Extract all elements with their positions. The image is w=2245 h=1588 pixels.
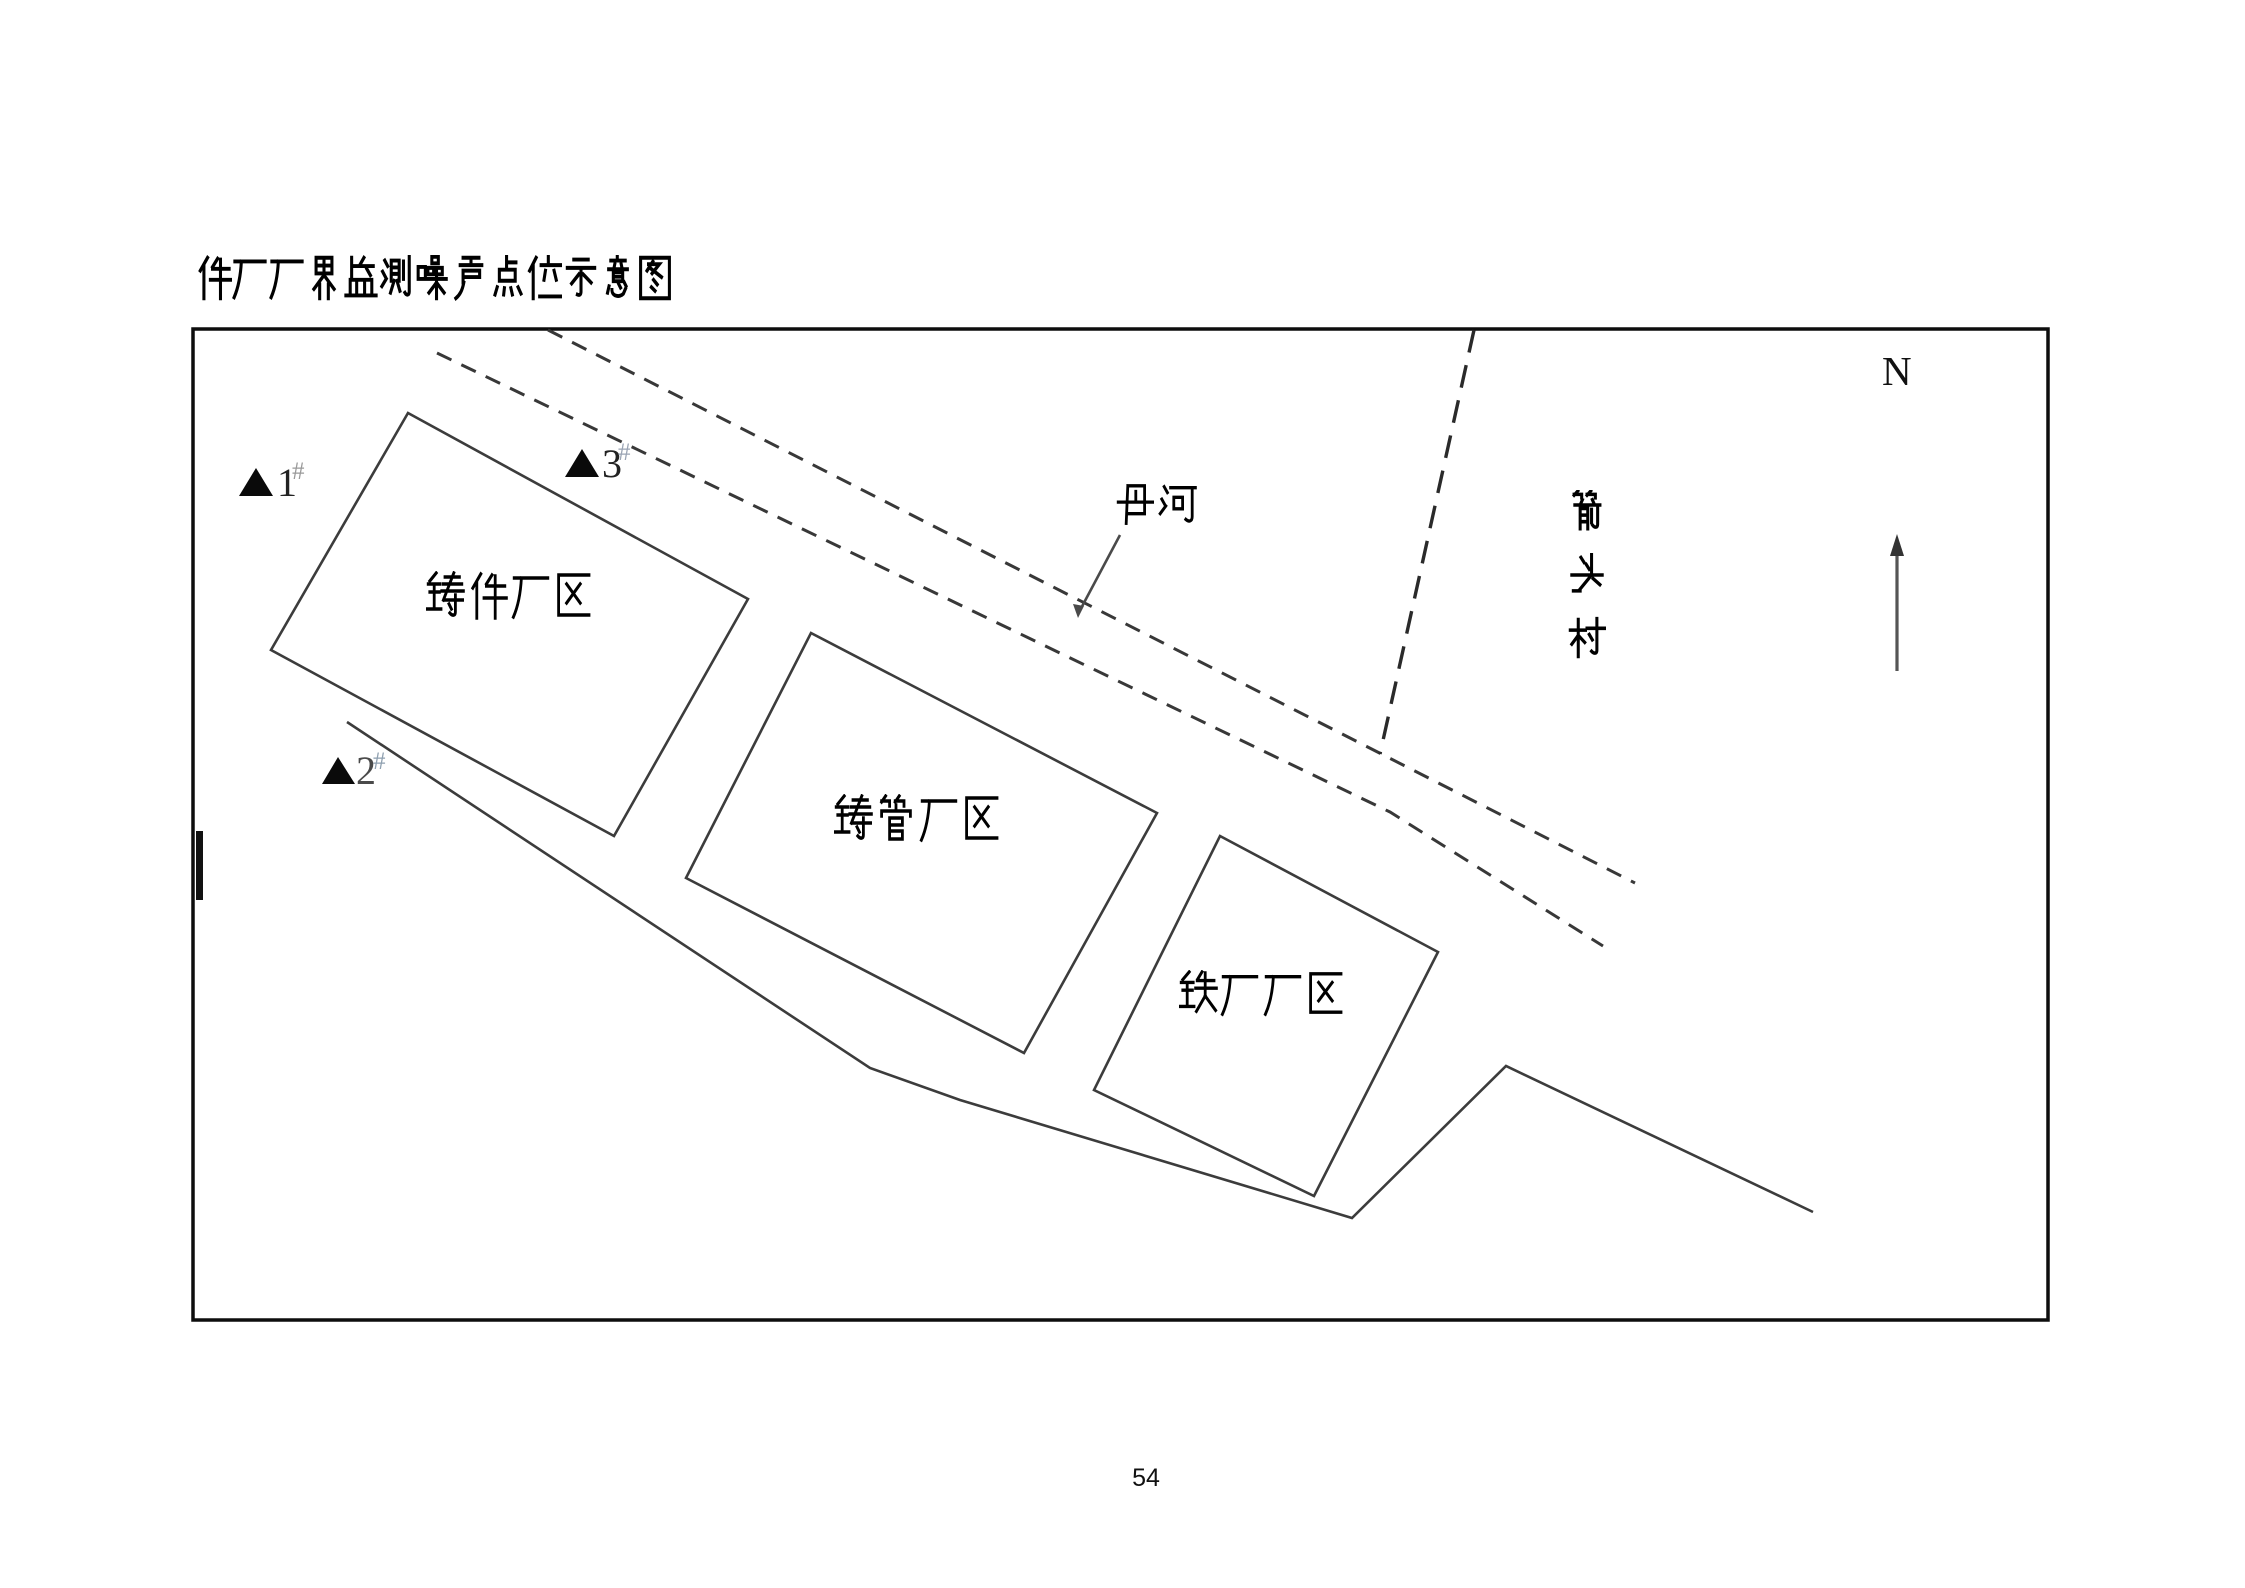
svg-text:#: # (292, 458, 305, 485)
svg-text:#: # (618, 439, 631, 466)
svg-text:#: # (373, 748, 386, 775)
svg-text:54: 54 (1132, 1464, 1160, 1492)
svg-text:N: N (1882, 348, 1912, 394)
